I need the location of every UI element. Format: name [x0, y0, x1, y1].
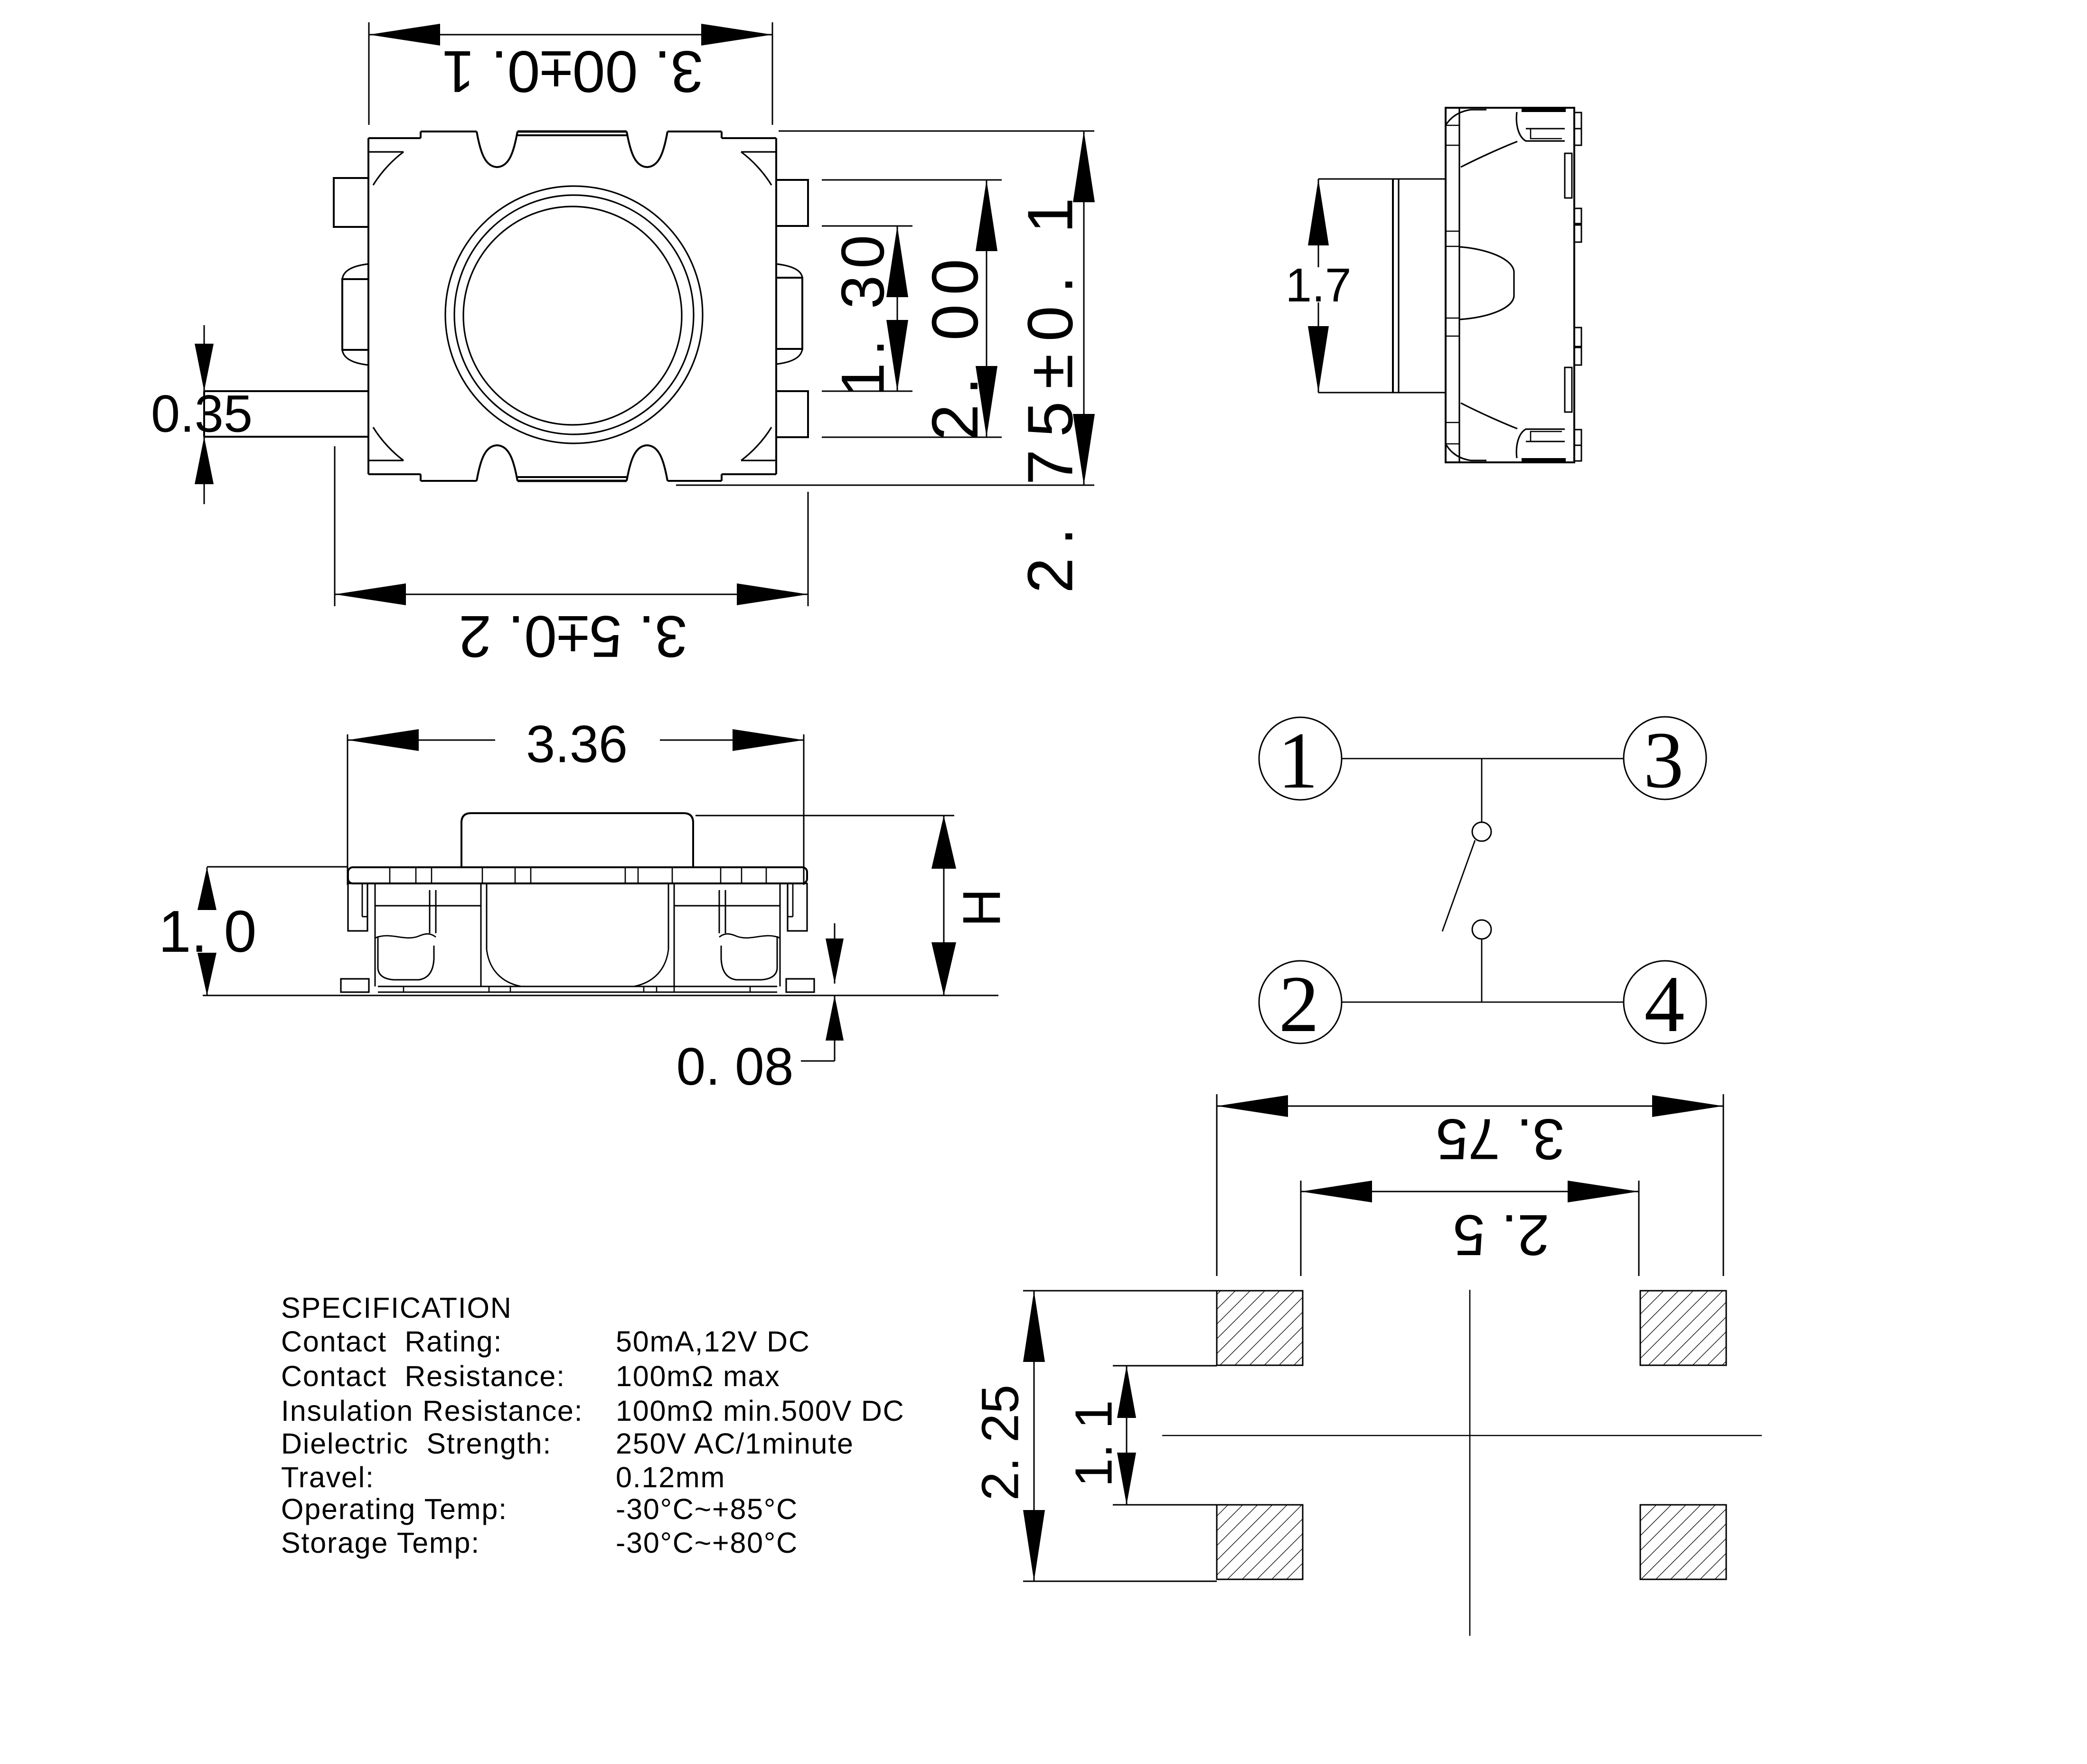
svg-text:2. 5: 2. 5 [1453, 1203, 1550, 1267]
svg-text:3.36: 3.36 [526, 715, 628, 774]
svg-text:1.7: 1.7 [1285, 259, 1351, 312]
svg-text:3. 5±0. 2: 3. 5±0. 2 [459, 603, 687, 669]
svg-text:SPECIFICATION: SPECIFICATION [281, 1292, 512, 1324]
svg-text:50mA,12V DC: 50mA,12V DC [616, 1325, 810, 1358]
svg-text:2. 00: 2. 00 [919, 250, 992, 441]
svg-text:4: 4 [1645, 959, 1685, 1049]
svg-text:Insulation Resistance:: Insulation Resistance: [281, 1395, 583, 1427]
svg-text:Travel:: Travel: [281, 1461, 375, 1493]
svg-text:2. 75±0. 1: 2. 75±0. 1 [1015, 185, 1086, 593]
svg-text:0.12mm: 0.12mm [616, 1461, 725, 1493]
svg-text:250V AC/1minute: 250V AC/1minute [616, 1427, 854, 1460]
svg-text:Contact Resistance:: Contact Resistance: [281, 1360, 565, 1392]
svg-text:2. 25: 2. 25 [971, 1385, 1030, 1501]
svg-text:0.35: 0.35 [151, 385, 253, 443]
svg-text:Dielectric Strength:: Dielectric Strength: [281, 1427, 552, 1460]
svg-text:3. 75: 3. 75 [1436, 1107, 1564, 1172]
svg-text:Contact Rating:: Contact Rating: [281, 1325, 502, 1358]
svg-text:1. 30: 1. 30 [829, 228, 897, 397]
svg-text:Operating Temp:: Operating Temp: [281, 1493, 508, 1525]
svg-text:1. 1: 1. 1 [1065, 1400, 1123, 1487]
svg-text:100mΩ max: 100mΩ max [616, 1360, 780, 1392]
svg-text:3: 3 [1644, 715, 1684, 805]
svg-text:1: 1 [1278, 716, 1318, 805]
svg-text:-30°C~+80°C: -30°C~+80°C [616, 1527, 798, 1559]
svg-text:0. 08: 0. 08 [677, 1037, 794, 1096]
svg-text:1. 0: 1. 0 [159, 899, 257, 965]
svg-text:Storage Temp:: Storage Temp: [281, 1527, 480, 1559]
svg-text:H: H [952, 889, 1012, 927]
svg-text:2: 2 [1279, 959, 1319, 1049]
svg-text:3. 00±0. 1: 3. 00±0. 1 [442, 38, 704, 104]
svg-text:100mΩ min.500V DC: 100mΩ min.500V DC [616, 1395, 905, 1427]
svg-text:-30°C~+85°C: -30°C~+85°C [616, 1493, 798, 1525]
